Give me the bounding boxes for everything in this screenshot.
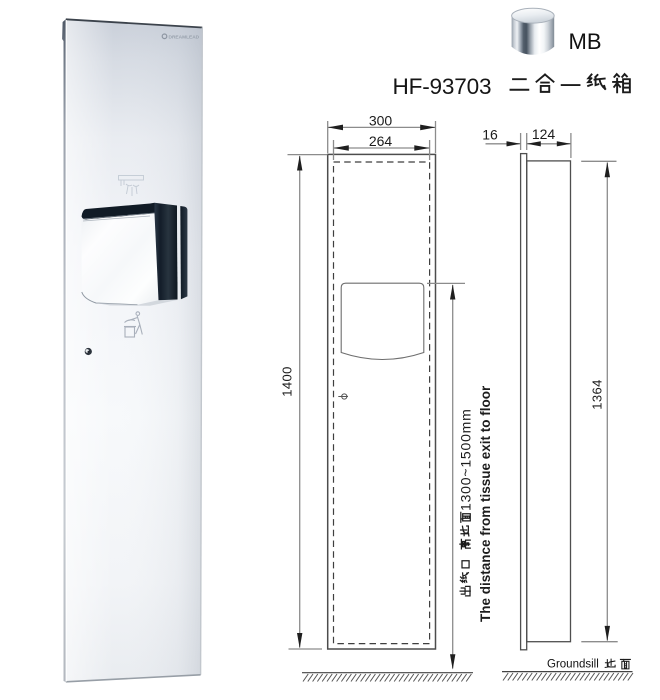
svg-text:1400: 1400: [280, 366, 295, 397]
svg-text:16: 16: [482, 127, 498, 143]
svg-text:300: 300: [369, 112, 393, 128]
svg-text:DREAMLEAD: DREAMLEAD: [169, 35, 200, 41]
svg-text:MB: MB: [569, 29, 602, 54]
svg-text:1300~1500mm: 1300~1500mm: [458, 408, 474, 511]
svg-text:HF-93703: HF-93703: [393, 74, 492, 99]
svg-text:Groundsill: Groundsill: [547, 659, 599, 671]
svg-text:124: 124: [532, 126, 556, 142]
svg-text:The distance from tissue exit: The distance from tissue exit to floor: [478, 385, 493, 622]
svg-text:1364: 1364: [590, 379, 605, 410]
svg-text:264: 264: [369, 133, 393, 149]
